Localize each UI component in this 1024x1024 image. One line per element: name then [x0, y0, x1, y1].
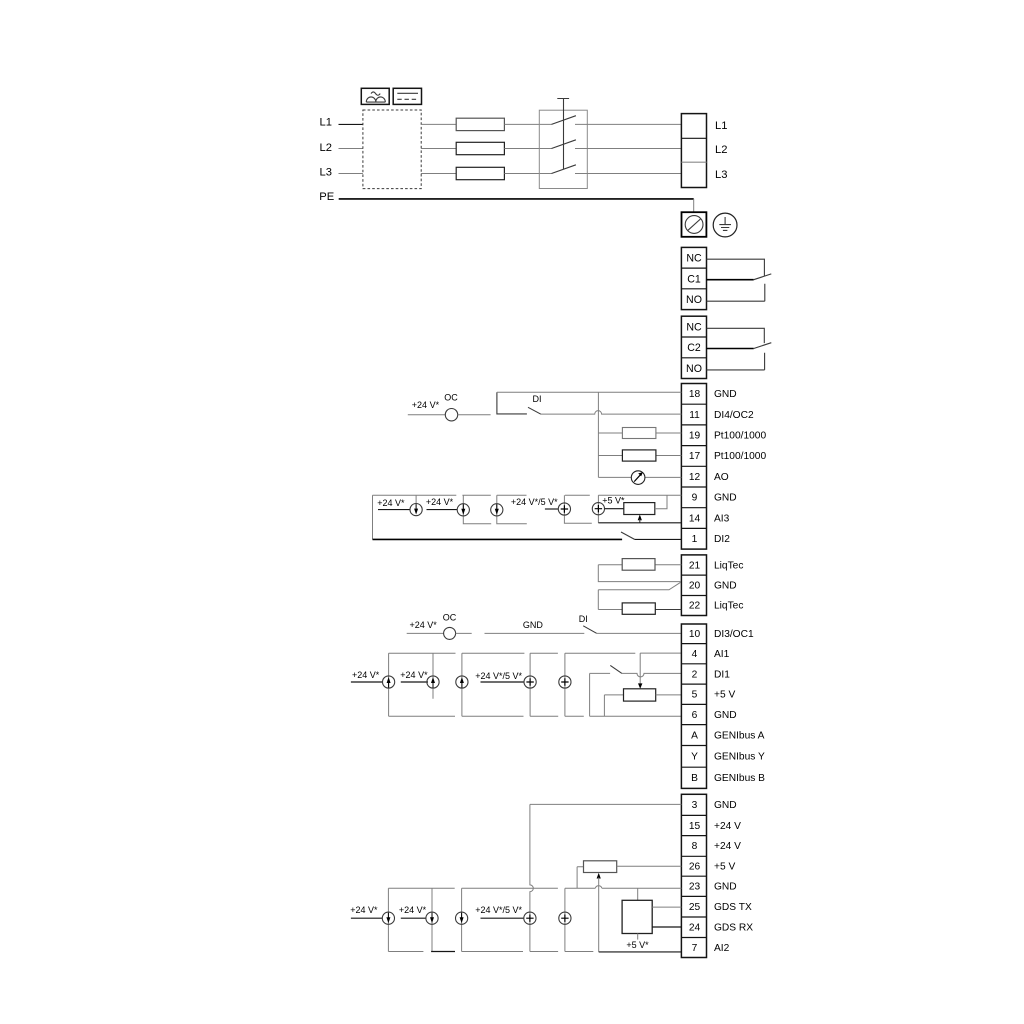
svg-text:8: 8 [692, 841, 698, 852]
svg-text:25: 25 [689, 902, 701, 913]
svg-text:C2: C2 [687, 342, 701, 354]
svg-text:+24 V*: +24 V* [350, 905, 378, 915]
svg-text:+5 V: +5 V [714, 690, 735, 701]
svg-text:GND: GND [714, 389, 737, 400]
svg-text:DI3/OC1: DI3/OC1 [714, 629, 754, 640]
svg-text:L3: L3 [320, 166, 332, 178]
svg-text:L1: L1 [715, 120, 727, 132]
svg-text:+24 V*: +24 V* [399, 905, 427, 915]
svg-text:A: A [691, 730, 698, 741]
svg-text:AI3: AI3 [714, 513, 730, 524]
svg-text:Pt100/1000: Pt100/1000 [714, 431, 766, 442]
svg-text:DI1: DI1 [714, 669, 730, 680]
svg-text:+24 V*: +24 V* [410, 620, 438, 630]
svg-text:3: 3 [692, 800, 698, 811]
svg-text:AO: AO [714, 472, 729, 483]
svg-text:GENIbus A: GENIbus A [714, 730, 765, 741]
svg-text:21: 21 [689, 560, 701, 571]
svg-text:19: 19 [689, 431, 701, 442]
svg-text:GND: GND [714, 581, 737, 592]
svg-text:4: 4 [692, 649, 698, 660]
svg-text:23: 23 [689, 882, 701, 893]
svg-text:B: B [691, 773, 698, 784]
svg-text:+24 V: +24 V [714, 841, 741, 852]
svg-text:GDS RX: GDS RX [714, 923, 753, 934]
svg-text:L1: L1 [320, 116, 332, 128]
svg-text:L2: L2 [320, 142, 332, 154]
svg-text:15: 15 [689, 821, 701, 832]
svg-text:NC: NC [686, 321, 702, 333]
svg-text:+24 V*: +24 V* [426, 497, 454, 507]
svg-text:+24 V*/5 V*: +24 V*/5 V* [475, 671, 522, 681]
svg-text:18: 18 [689, 389, 701, 400]
svg-text:9: 9 [692, 493, 698, 504]
svg-text:AI1: AI1 [714, 649, 730, 660]
svg-text:+24 V*: +24 V* [412, 400, 440, 410]
svg-text:12: 12 [689, 472, 701, 483]
svg-text:22: 22 [689, 601, 701, 612]
svg-text:+24 V*: +24 V* [377, 498, 405, 508]
svg-text:+24 V*: +24 V* [400, 670, 428, 680]
svg-text:+5 V: +5 V [714, 861, 735, 872]
svg-text:+5 V*: +5 V* [626, 940, 649, 950]
svg-text:17: 17 [689, 451, 701, 462]
svg-text:GENIbus B: GENIbus B [714, 773, 765, 784]
svg-text:LiqTec: LiqTec [714, 560, 743, 571]
svg-text:GND: GND [714, 800, 737, 811]
svg-text:1: 1 [692, 534, 698, 545]
svg-text:20: 20 [689, 581, 701, 592]
svg-text:2: 2 [692, 669, 698, 680]
svg-text:5: 5 [692, 690, 698, 701]
svg-text:7: 7 [692, 943, 698, 954]
svg-text:C1: C1 [687, 273, 701, 285]
svg-text:GDS TX: GDS TX [714, 902, 752, 913]
svg-text:+24 V: +24 V [714, 821, 741, 832]
svg-text:PE: PE [319, 191, 334, 203]
svg-text:GENIbus Y: GENIbus Y [714, 752, 765, 763]
svg-text:26: 26 [689, 861, 701, 872]
svg-text:Y: Y [691, 752, 698, 763]
svg-text:GND: GND [714, 493, 737, 504]
svg-text:10: 10 [689, 629, 701, 640]
svg-text:6: 6 [692, 710, 698, 721]
svg-text:+24 V*/5 V*: +24 V*/5 V* [475, 905, 522, 915]
svg-text:NC: NC [686, 253, 702, 265]
svg-text:Pt100/1000: Pt100/1000 [714, 451, 766, 462]
svg-text:L3: L3 [715, 169, 727, 181]
svg-text:11: 11 [689, 410, 700, 421]
svg-text:NO: NO [686, 363, 702, 375]
svg-text:GND: GND [714, 882, 737, 893]
svg-text:L2: L2 [715, 144, 727, 156]
svg-text:GND: GND [523, 620, 544, 630]
svg-text:DI: DI [579, 614, 588, 624]
svg-text:24: 24 [689, 923, 701, 934]
svg-text:AI2: AI2 [714, 943, 730, 954]
svg-text:GND: GND [714, 710, 737, 721]
svg-text:+5 V*: +5 V* [602, 496, 625, 506]
svg-text:LiqTec: LiqTec [714, 601, 743, 612]
svg-text:+24 V*: +24 V* [352, 670, 380, 680]
svg-text:DI4/OC2: DI4/OC2 [714, 410, 754, 421]
svg-text:OC: OC [443, 612, 457, 622]
svg-text:DI: DI [533, 394, 542, 404]
svg-text:14: 14 [689, 513, 701, 524]
svg-text:OC: OC [444, 392, 458, 402]
svg-text:NO: NO [686, 294, 702, 306]
svg-text:+24 V*/5 V*: +24 V*/5 V* [511, 497, 558, 507]
svg-text:DI2: DI2 [714, 534, 730, 545]
